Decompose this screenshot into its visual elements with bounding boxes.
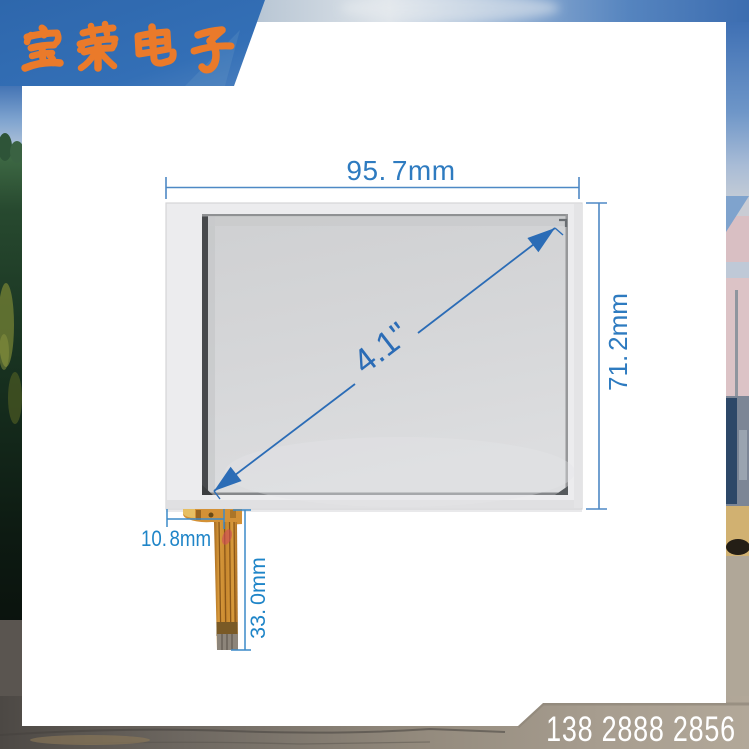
svg-text:95.7mm: 95.7mm (346, 155, 455, 186)
svg-text:138 2888 2856: 138 2888 2856 (546, 710, 736, 749)
svg-text:33.0mm: 33.0mm (246, 557, 270, 639)
svg-text:10.8mm: 10.8mm (141, 528, 211, 552)
svg-text:71.2mm: 71.2mm (603, 293, 633, 391)
